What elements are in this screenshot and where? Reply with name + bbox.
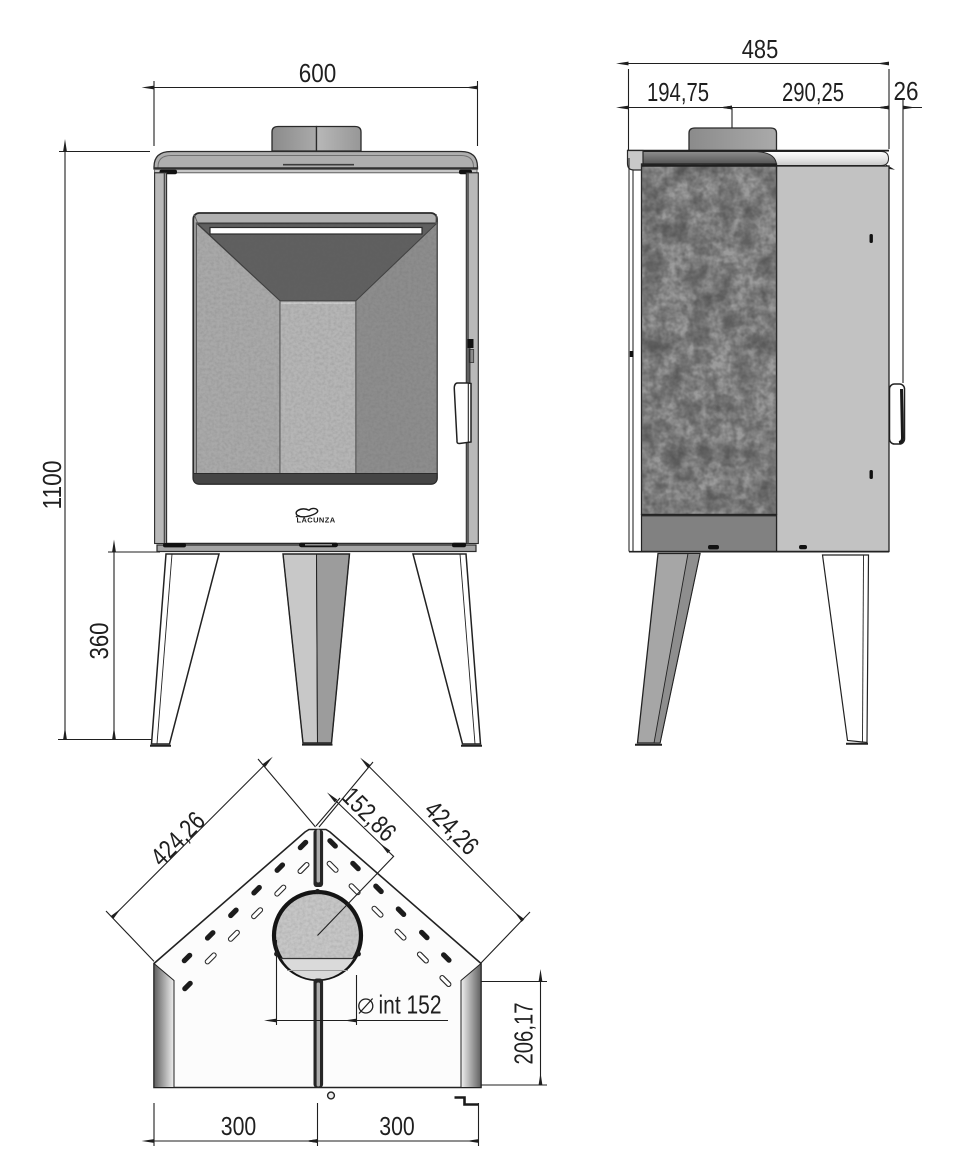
- svg-text:LACUNZA: LACUNZA: [296, 516, 335, 525]
- svg-text:194,75: 194,75: [647, 77, 709, 107]
- svg-text:300: 300: [379, 1111, 415, 1141]
- svg-text:485: 485: [742, 34, 779, 64]
- svg-text:300: 300: [221, 1111, 257, 1141]
- svg-text:26: 26: [894, 76, 919, 106]
- svg-text:290,25: 290,25: [782, 77, 844, 107]
- svg-text:360: 360: [84, 623, 114, 660]
- svg-text:600: 600: [299, 58, 337, 88]
- svg-text:1100: 1100: [37, 461, 67, 510]
- svg-text:206,17: 206,17: [509, 1003, 539, 1065]
- svg-text:int 152: int 152: [379, 990, 442, 1020]
